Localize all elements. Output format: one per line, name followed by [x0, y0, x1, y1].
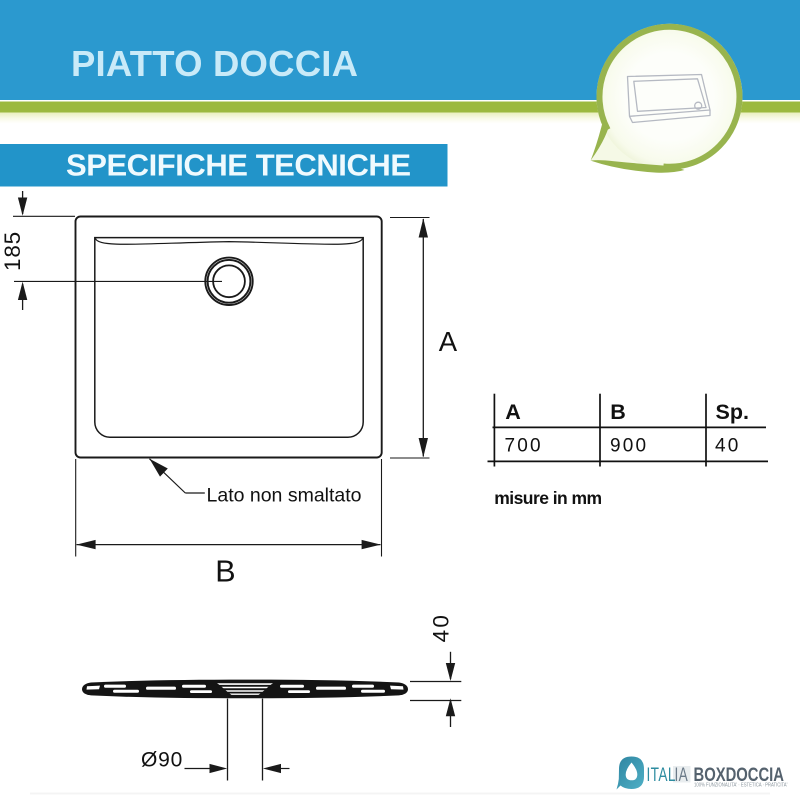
- svg-text:SPECIFICHE TECNICHE: SPECIFICHE TECNICHE: [66, 148, 411, 183]
- svg-text:B: B: [215, 555, 235, 589]
- svg-text:PIATTO DOCCIA: PIATTO DOCCIA: [71, 43, 358, 84]
- svg-text:40: 40: [715, 435, 741, 456]
- svg-text:misure in mm: misure in mm: [494, 488, 601, 508]
- svg-text:IA: IA: [675, 764, 689, 786]
- svg-text:700: 700: [505, 435, 543, 456]
- svg-text:B: B: [610, 400, 626, 424]
- svg-text:100% FUNZIONALITA' · ESTETICA: 100% FUNZIONALITA' · ESTETICA · PRATICIT…: [694, 782, 788, 787]
- svg-text:ITAL: ITAL: [647, 764, 676, 786]
- svg-text:Lato non smaltato: Lato non smaltato: [207, 485, 362, 507]
- svg-text:Ø90: Ø90: [141, 749, 183, 772]
- svg-text:185: 185: [0, 231, 25, 271]
- svg-text:Sp.: Sp.: [716, 400, 749, 424]
- svg-text:900: 900: [610, 435, 648, 456]
- svg-text:A: A: [439, 326, 458, 357]
- svg-text:A: A: [505, 400, 521, 424]
- svg-text:40: 40: [428, 613, 453, 642]
